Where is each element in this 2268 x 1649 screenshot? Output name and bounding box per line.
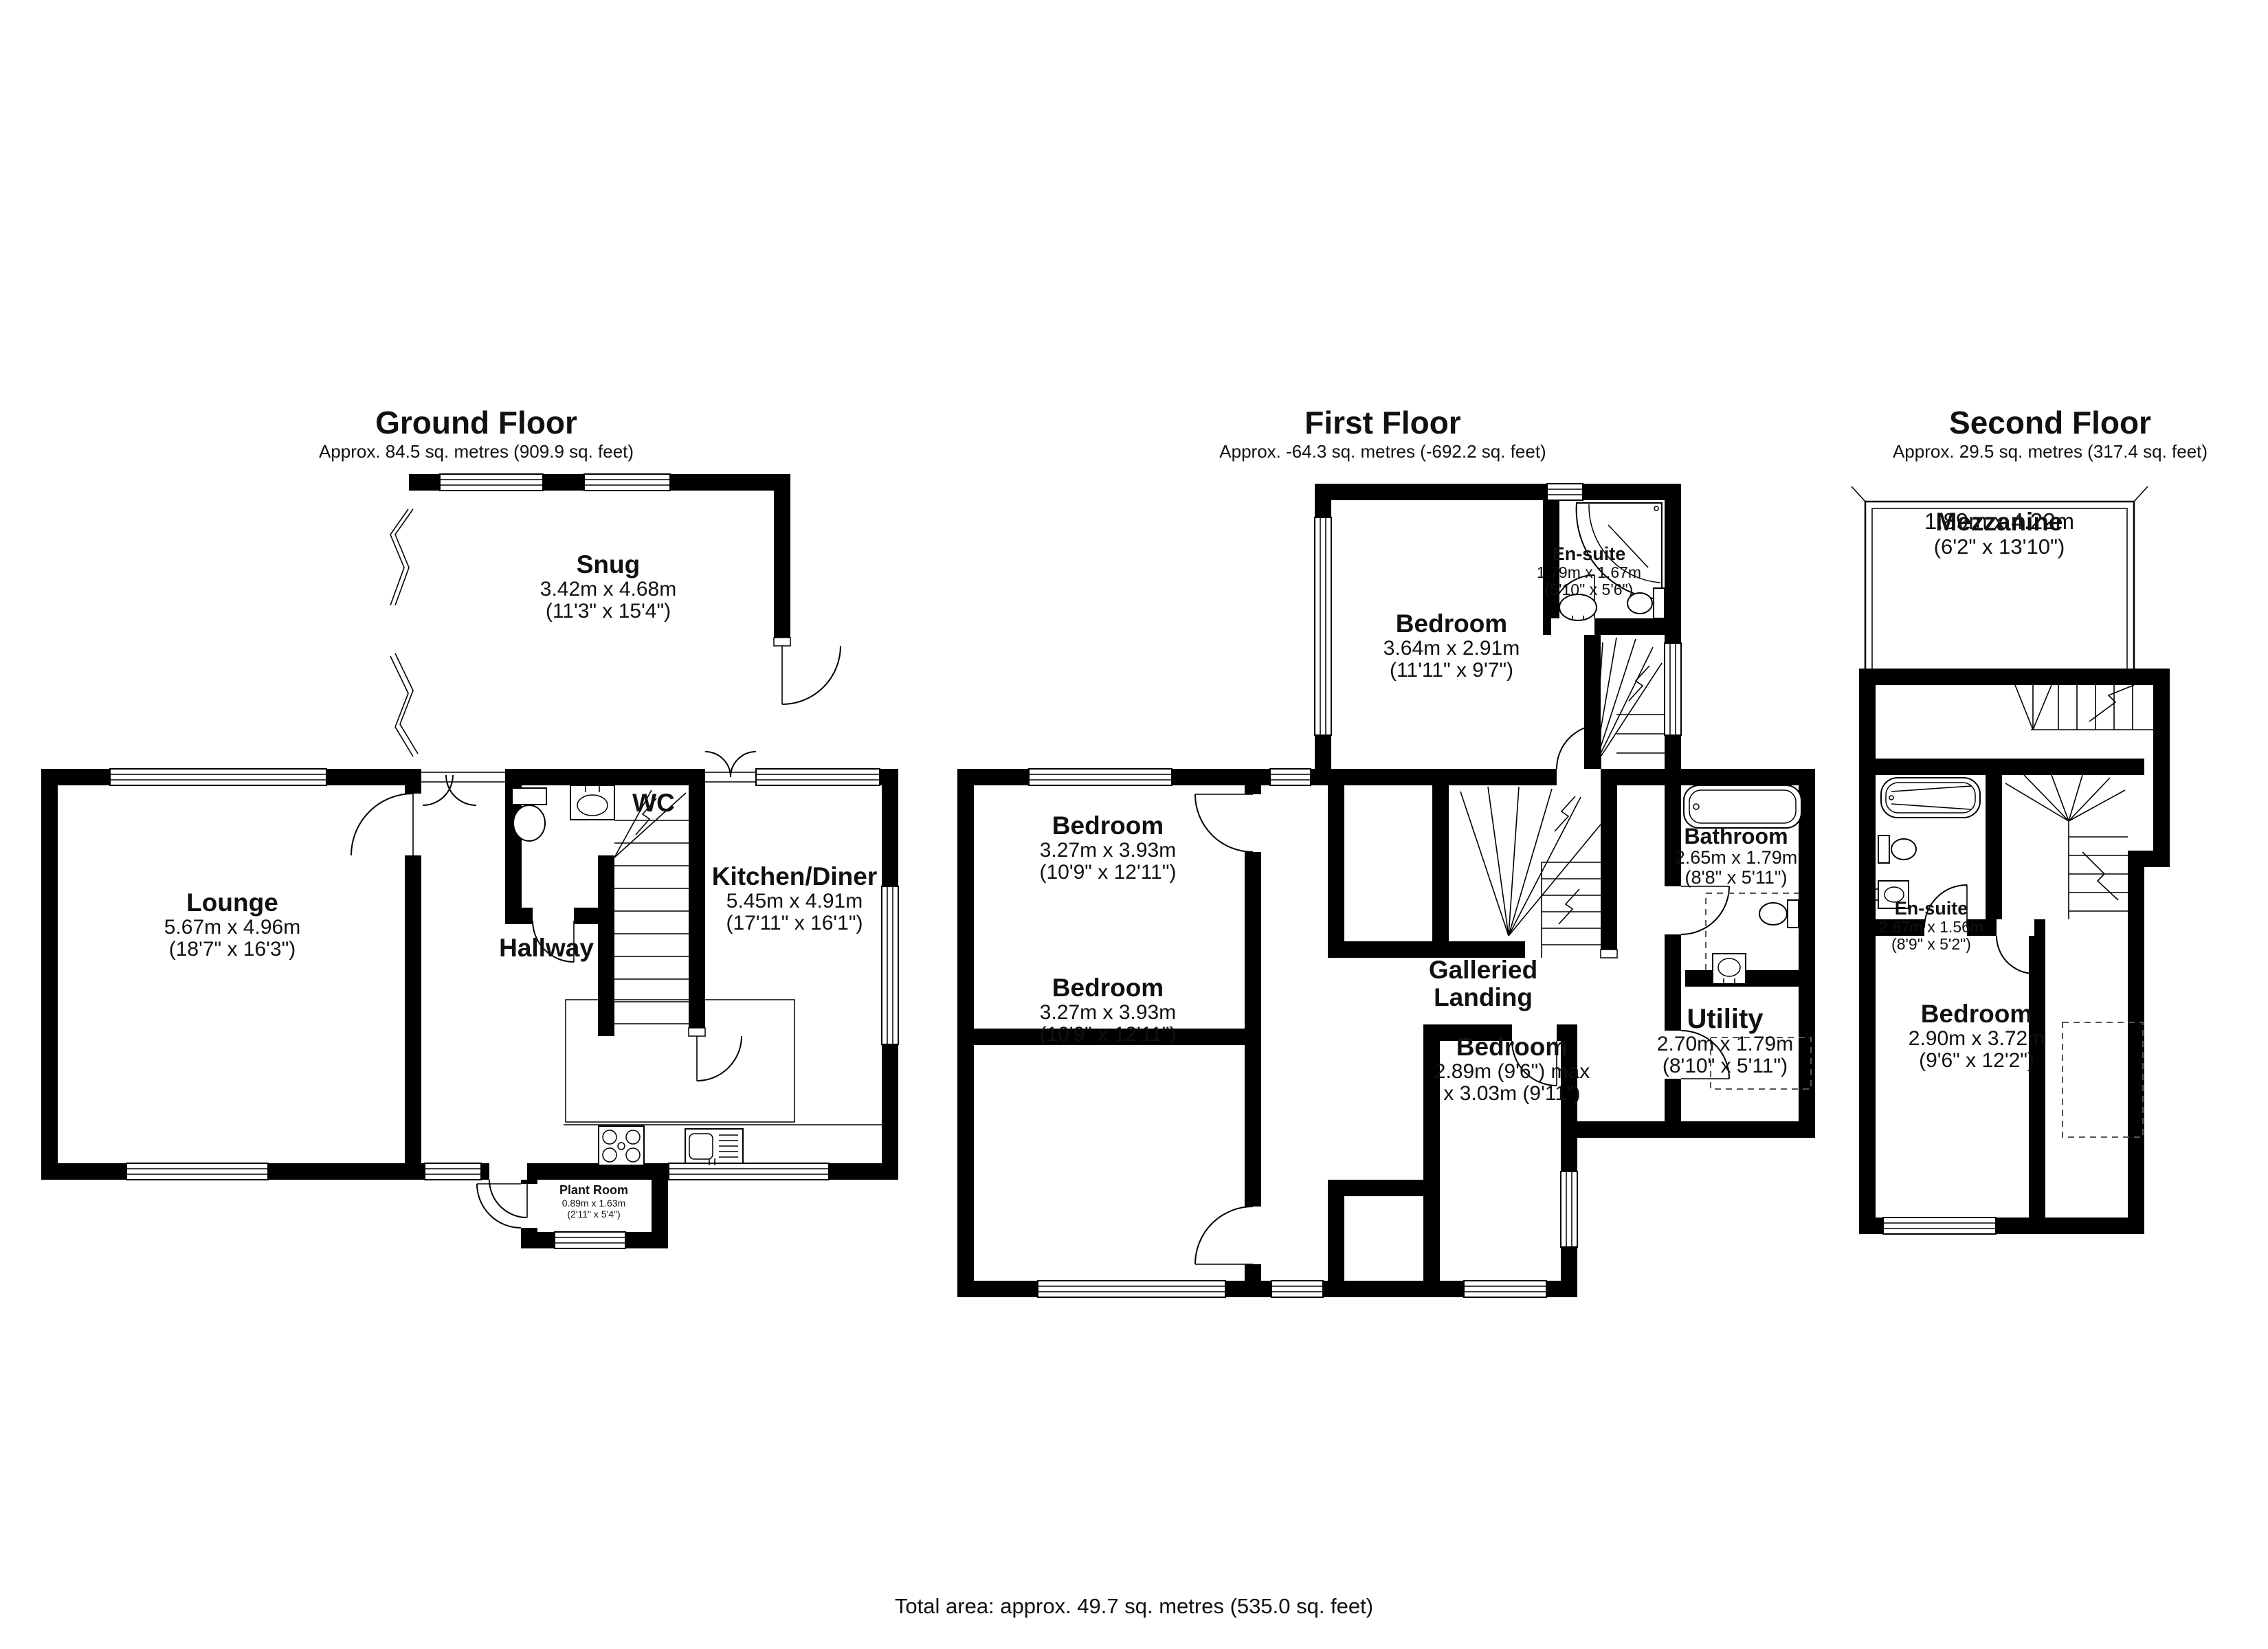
room-label-lounge: Lounge 5.67m x 4.96m (18'7" x 16'3"): [164, 889, 300, 961]
room-label-hallway: Hallway: [499, 934, 594, 962]
staircase: [614, 790, 689, 1024]
staircase: [2015, 685, 2153, 730]
wall: [652, 1163, 668, 1248]
door-opening: [1665, 886, 1681, 934]
door-opening: [1245, 794, 1261, 852]
staircase: [1460, 787, 1601, 958]
room-label-kitchen-diner: Kitchen/Diner 5.45m x 4.91m (17'11" x 16…: [712, 863, 878, 934]
window: [1665, 643, 1681, 735]
window: [1270, 769, 1311, 785]
window: [1547, 484, 1583, 500]
window: [1464, 1281, 1546, 1297]
room-dims-metric: 5.45m x 4.91m: [712, 890, 878, 912]
room-label-ensuite-second: En-suite 2.67m x 1.56m (8'9" x 5'2"): [1879, 899, 1983, 953]
wall: [1986, 759, 2002, 919]
door-opening: [521, 1184, 537, 1228]
room-name: Bedroom: [1040, 812, 1177, 840]
bathtub-icon: [1684, 785, 1801, 828]
first-floor-subtitle: Approx. -64.3 sq. metres (-692.2 sq. fee…: [1219, 441, 1546, 462]
staircase: [1594, 638, 1665, 766]
wall-cap: [1601, 950, 1617, 958]
wall: [598, 855, 614, 1036]
room-name: Bathroom: [1675, 824, 1798, 848]
window: [555, 1232, 625, 1248]
ground-floor-subtitle: Approx. 84.5 sq. metres (909.9 sq. feet): [319, 441, 634, 462]
room-dims-metric: 2.67m x 1.56m: [1879, 919, 1983, 936]
room-label-ensuite-first: En-suite 1.79m x 1.67m (5'10" x 5'6"): [1537, 544, 1641, 598]
room-name: En-suite: [1537, 544, 1641, 564]
sink-icon: [1713, 954, 1746, 984]
room-dims-imperial: (9'6" x 12'2"): [1909, 1050, 2045, 1072]
room-name: Plant Room: [549, 1183, 638, 1198]
bathtub-icon: [1881, 778, 1980, 818]
window: [1315, 517, 1331, 735]
zigzag-opening: [390, 509, 408, 605]
wall: [1601, 785, 1617, 958]
room-dims-imperial: (8'9" x 5'2"): [1879, 936, 1983, 953]
window: [1561, 1171, 1577, 1247]
room-dims-metric: 2.70m x 1.79m: [1657, 1033, 1793, 1055]
room-dims-metric: 3.27m x 3.93m: [1040, 1002, 1177, 1024]
room-name: WC: [632, 789, 675, 817]
window: [440, 474, 543, 491]
wall: [41, 769, 58, 1180]
wall: [1315, 484, 1681, 500]
room-name: Galleried Landing: [1404, 956, 1562, 1011]
door-opening: [1997, 919, 2034, 936]
wall: [1328, 785, 1344, 958]
room-name: Lounge: [164, 889, 300, 917]
room-label-bedroom-top: Bedroom 3.64m x 2.91m (11'11" x 9'7"): [1383, 610, 1520, 682]
room-name: Bedroom: [1040, 974, 1177, 1002]
second-floor-plan: [1852, 486, 2170, 1234]
room-name: Kitchen/Diner: [712, 863, 878, 890]
window: [1038, 1281, 1225, 1297]
door-opening: [1557, 769, 1601, 785]
zigzag-opening: [395, 653, 418, 754]
room-name: Snug: [540, 551, 676, 579]
door-arc: [782, 646, 841, 704]
room-label-wc: WC: [632, 789, 675, 817]
room-dims-metric: 2.90m x 3.72m: [1909, 1028, 2045, 1050]
wall: [505, 769, 705, 785]
window: [1029, 769, 1172, 785]
window: [1271, 1281, 1323, 1297]
room-dims-imperial: (8'8" x 5'11"): [1675, 868, 1798, 888]
room-label-mezzanine: Mezzanine 1.89m x 4.22m (6'2" x 13'10"): [1862, 508, 2137, 558]
room-name: Utility: [1657, 1005, 1793, 1033]
room-dims-imperial: x 3.03m (9'11"): [1434, 1083, 1590, 1105]
wall: [1561, 1121, 1815, 1138]
ground-floor-plan: [41, 474, 898, 1248]
room-label-utility: Utility 2.70m x 1.79m (8'10" x 5'11"): [1657, 1005, 1793, 1077]
toilet-icon: [1759, 900, 1799, 928]
wall: [774, 474, 790, 646]
room-dims-imperial: (11'3" x 15'4"): [540, 601, 676, 622]
toilet-icon: [512, 788, 546, 841]
room-dims-metric: 2.89m (9'6") max: [1434, 1061, 1590, 1083]
wall: [2029, 936, 2045, 1218]
room-dims-metric: 5.67m x 4.96m: [164, 917, 300, 939]
room-name: En-suite: [1879, 899, 1983, 919]
window: [584, 474, 670, 491]
wall: [1799, 769, 1815, 1138]
toilet-icon: [1878, 835, 1916, 863]
zigzag-opening: [390, 656, 413, 756]
door-opening: [1551, 618, 1594, 635]
window: [882, 886, 898, 1044]
door-opening: [489, 1163, 527, 1180]
room-dims-imperial: (8'10" x 5'11"): [1657, 1055, 1793, 1077]
wall: [1685, 970, 1815, 987]
total-area-text: Total area: approx. 49.7 sq. metres (535…: [895, 1594, 1373, 1619]
room-label-snug: Snug 3.42m x 4.68m (11'3" x 15'4"): [540, 551, 676, 622]
ground-floor-title: Ground Floor: [375, 404, 577, 441]
door-arc: [1195, 1207, 1253, 1264]
wall-cap: [689, 1028, 705, 1036]
room-dims-metric: 3.42m x 4.68m: [540, 579, 676, 601]
second-floor-title: Second Floor: [1949, 404, 2151, 441]
wall: [1876, 759, 2144, 775]
door-arc: [351, 794, 413, 855]
window: [756, 769, 880, 785]
hob-icon: [599, 1126, 644, 1165]
room-dims-metric: 1.89m x 4.22m: [1924, 508, 2074, 535]
room-label-plant-room: Plant Room 0.89m x 1.63m (2'11" x 5'4"): [549, 1183, 638, 1220]
kitchen-sink-icon: [685, 1129, 743, 1165]
second-floor-subtitle: Approx. 29.5 sq. metres (317.4 sq. feet): [1893, 441, 2208, 462]
room-dims-imperial: (6'2" x 13'10"): [1862, 536, 2137, 558]
door-opening: [1245, 1207, 1261, 1264]
door-opening: [533, 908, 574, 924]
door-arc: [423, 775, 476, 805]
door-arc: [705, 752, 756, 777]
room-dims-imperial: (10'9" x 12'11"): [1040, 862, 1177, 884]
room-label-bedroom-second: Bedroom 2.90m x 3.72m (9'6" x 12'2"): [1909, 1000, 2045, 1072]
room-dims-imperial: (11'11" x 9'7"): [1383, 660, 1520, 682]
room-label-galleried-landing: Galleried Landing: [1404, 956, 1562, 1011]
first-floor-plan: [957, 484, 1815, 1297]
room-dims-imperial: (18'7" x 16'3"): [164, 939, 300, 961]
room-dims-metric: 3.64m x 2.91m: [1383, 638, 1520, 660]
window: [126, 1163, 268, 1180]
wall: [1859, 669, 2170, 685]
first-floor-title: First Floor: [1304, 404, 1460, 441]
room-dims-metric: 0.89m x 1.63m: [549, 1198, 638, 1209]
sink-icon: [570, 785, 614, 820]
wall: [2128, 851, 2144, 1234]
wall: [1328, 1180, 1344, 1297]
wall-cap: [774, 638, 790, 646]
room-dims-imperial: (5'10" x 5'6"): [1537, 581, 1641, 598]
door-arc: [1195, 794, 1253, 852]
staircase: [2005, 775, 2128, 919]
door-arc: [1997, 936, 2034, 974]
room-dims-imperial: (2'11" x 5'4"): [549, 1209, 638, 1220]
wall: [2153, 669, 2170, 867]
room-name: Hallway: [499, 934, 594, 962]
window: [1883, 1218, 1996, 1234]
window: [425, 1163, 481, 1180]
mezzanine-overlapping-text: Mezzanine 1.89m x 4.22m: [1862, 508, 2137, 536]
room-dims-imperial: (10'9" x 12'11"): [1040, 1024, 1177, 1046]
wall: [1432, 785, 1449, 958]
window: [669, 1163, 829, 1180]
wall: [1859, 669, 1876, 1234]
room-label-bathroom: Bathroom 2.65m x 1.79m (8'8" x 5'11"): [1675, 824, 1798, 888]
wall: [689, 769, 705, 1036]
door-arc: [697, 1036, 742, 1081]
room-name: Bedroom: [1909, 1000, 2045, 1028]
room-dims-imperial: (17'11" x 16'1"): [712, 912, 878, 934]
room-dims-metric: 1.79m x 1.67m: [1537, 564, 1641, 581]
room-label-bedroom-left-upper: Bedroom 3.27m x 3.93m (10'9" x 12'11"): [1040, 812, 1177, 884]
room-name: Bedroom: [1383, 610, 1520, 638]
room-label-bedroom-center: Bedroom 2.89m (9'6") max x 3.03m (9'11"): [1434, 1033, 1590, 1105]
window: [110, 769, 326, 785]
room-label-bedroom-left-lower: Bedroom 3.27m x 3.93m (10'9" x 12'11"): [1040, 974, 1177, 1046]
room-dims-metric: 2.65m x 1.79m: [1675, 848, 1798, 868]
room-name: Bedroom: [1434, 1033, 1590, 1061]
room-dims-metric: 3.27m x 3.93m: [1040, 840, 1177, 862]
